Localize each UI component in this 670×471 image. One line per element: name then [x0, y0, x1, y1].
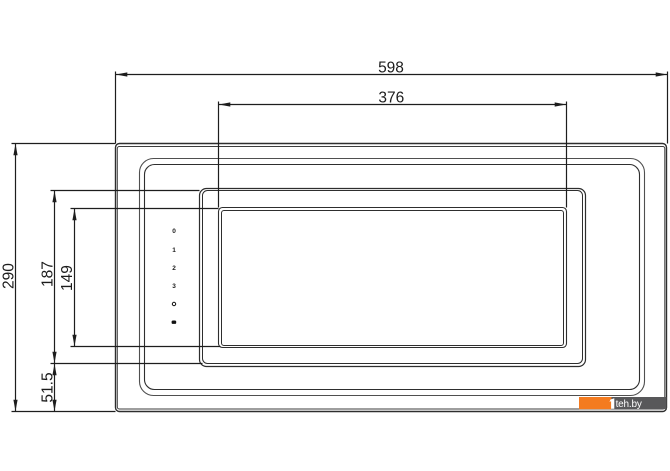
svg-text:376: 376 — [378, 89, 404, 106]
svg-text:1: 1 — [172, 247, 176, 254]
svg-text:187: 187 — [40, 261, 57, 287]
svg-text:2: 2 — [172, 265, 176, 272]
svg-text:0: 0 — [172, 228, 176, 235]
svg-text:149: 149 — [59, 265, 76, 291]
svg-text:teh.by: teh.by — [616, 399, 642, 410]
svg-text:3: 3 — [172, 283, 176, 290]
svg-text:290: 290 — [1, 263, 18, 289]
svg-text:51.5: 51.5 — [40, 372, 57, 402]
svg-text:598: 598 — [378, 59, 404, 76]
